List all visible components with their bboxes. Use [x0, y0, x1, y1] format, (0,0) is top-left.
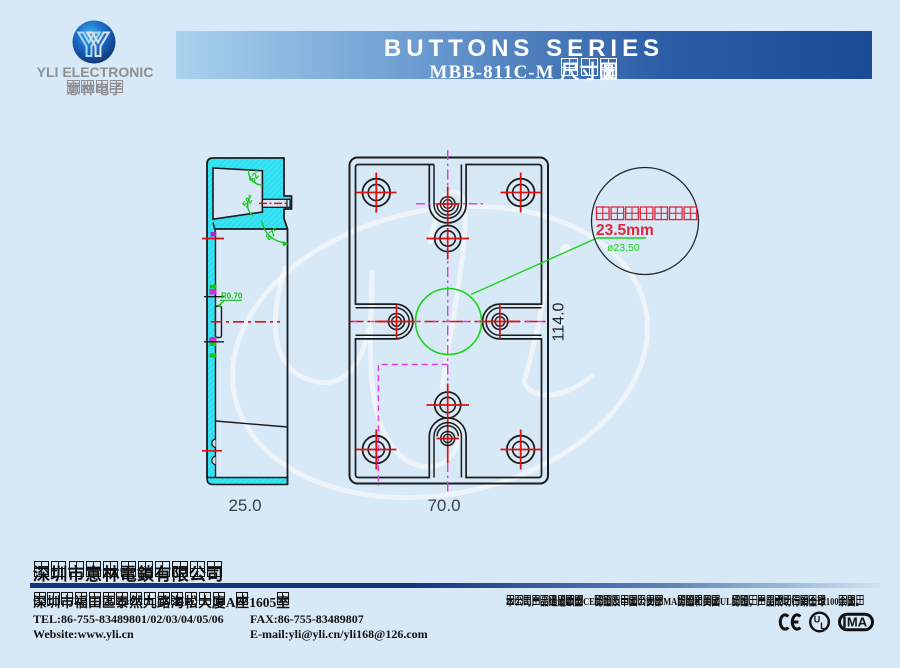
svg-text:25.0: 25.0: [228, 496, 261, 515]
svg-text:ø23,50: ø23,50: [607, 242, 640, 254]
svg-text:23.5mm: 23.5mm: [596, 222, 654, 239]
svg-text:70.0: 70.0: [427, 496, 460, 515]
svg-text:L: L: [820, 621, 826, 631]
svg-text:R0.70: R0.70: [221, 292, 243, 301]
svg-text:Y: Y: [87, 26, 110, 64]
svg-text:MA: MA: [847, 615, 868, 630]
svg-text:114.0: 114.0: [551, 302, 568, 341]
